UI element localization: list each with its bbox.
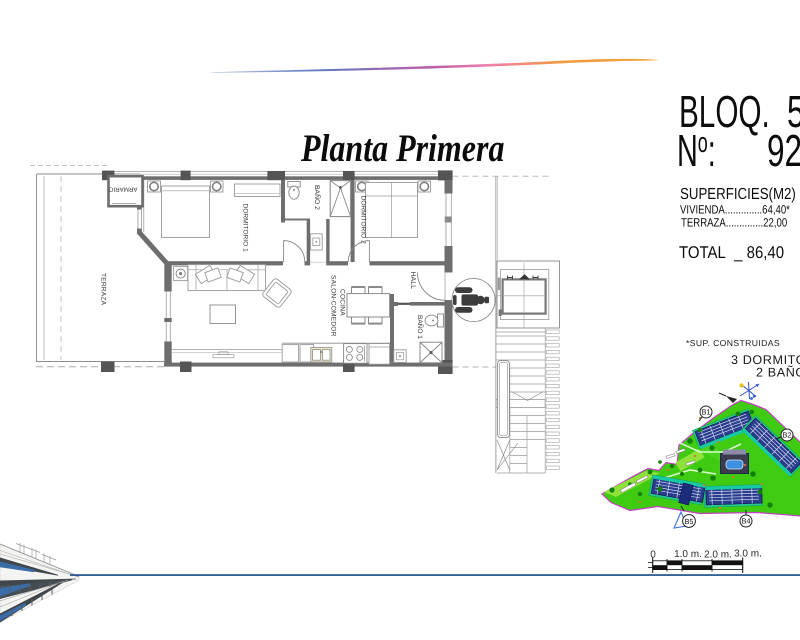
svg-text:SALON-COMEDOR: SALON-COMEDOR xyxy=(330,275,337,337)
svg-text:B4: B4 xyxy=(741,517,750,526)
svg-text:B2: B2 xyxy=(782,431,791,440)
svg-text:COCINA: COCINA xyxy=(339,289,346,316)
svg-text:DORMITORIO 2: DORMITORIO 2 xyxy=(360,196,367,245)
svg-text:No:: No: xyxy=(677,125,716,176)
svg-text:92: 92 xyxy=(767,125,800,176)
svg-text:0: 0 xyxy=(650,550,656,561)
svg-text:2.0 m.: 2.0 m. xyxy=(704,550,732,561)
svg-text:B1: B1 xyxy=(701,408,710,417)
svg-text:1.0 m.: 1.0 m. xyxy=(674,549,702,560)
svg-text:BAÑO 2: BAÑO 2 xyxy=(313,185,321,210)
svg-text:VIVIENDA..............64,40*: VIVIENDA..............64,40* xyxy=(680,203,790,217)
svg-text:TERRAZA..............22,00: TERRAZA..............22,00 xyxy=(681,216,787,230)
svg-text:B5: B5 xyxy=(684,517,693,526)
svg-text:Planta Primera: Planta Primera xyxy=(300,127,504,170)
svg-text:2 BAÑOS: 2 BAÑOS xyxy=(756,365,800,380)
svg-text:BAÑO 1: BAÑO 1 xyxy=(416,315,424,339)
svg-text:DORMITORIO 1: DORMITORIO 1 xyxy=(242,204,249,253)
svg-text:ARMARIO: ARMARIO xyxy=(108,186,137,193)
svg-text:SUPERFICIES(M2): SUPERFICIES(M2) xyxy=(680,186,796,203)
svg-text:TOTAL _ 86,40: TOTAL _ 86,40 xyxy=(679,243,784,262)
svg-text:HALL: HALL xyxy=(409,272,416,290)
svg-text:TERRAZA: TERRAZA xyxy=(100,273,107,306)
svg-text:*SUP. CONSTRUIDAS: *SUP. CONSTRUIDAS xyxy=(686,338,780,348)
svg-text:3.0 m.: 3.0 m. xyxy=(734,549,762,560)
